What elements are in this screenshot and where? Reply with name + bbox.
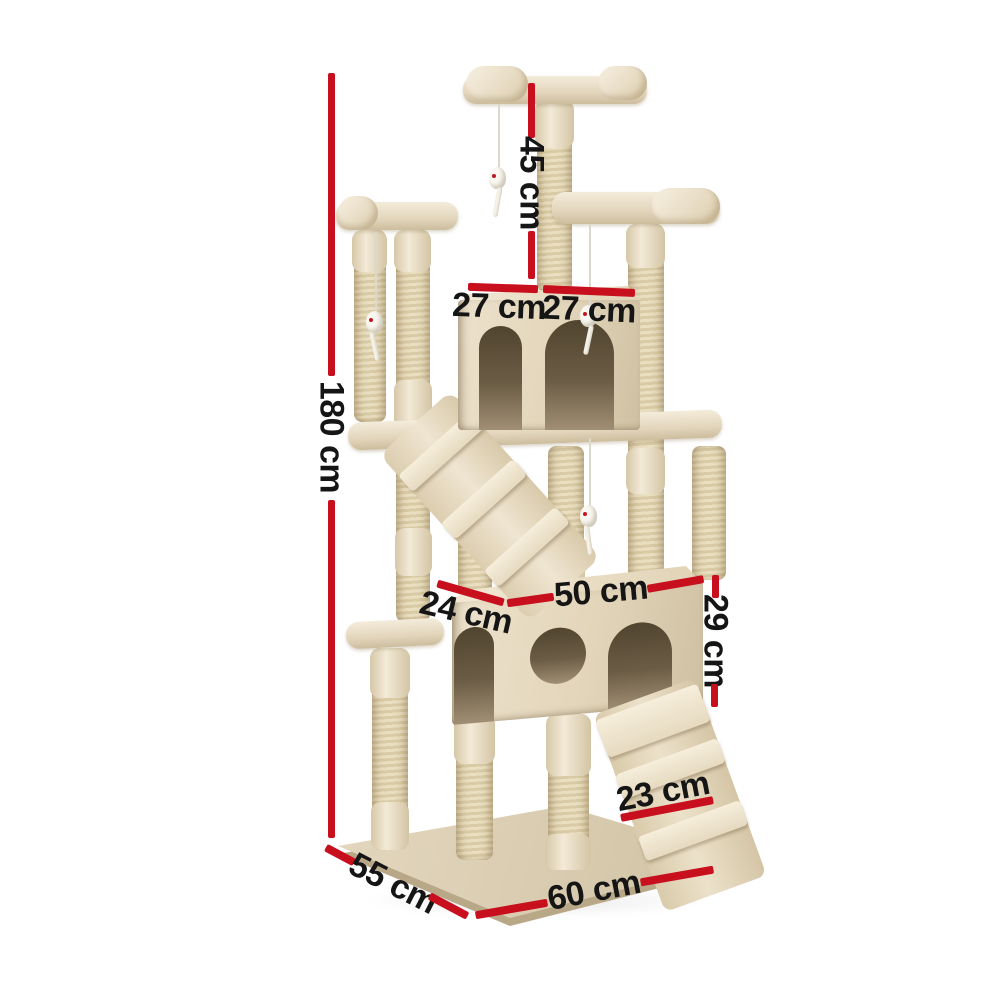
post-cuff bbox=[370, 648, 410, 698]
dim-180-line-bottom bbox=[328, 500, 335, 838]
mouse-eye bbox=[369, 318, 373, 322]
mouse-body bbox=[366, 311, 383, 333]
mouse-toy bbox=[580, 505, 598, 561]
dim-27-left-label: 27 cm bbox=[451, 286, 546, 328]
product-dimension-diagram: 180 cm 45 cm 27 cm 27 cm 50 cm 24 cm 29 … bbox=[0, 0, 1000, 1000]
top-perch-bolster-left bbox=[466, 66, 528, 102]
mouse-eye bbox=[583, 512, 587, 516]
mouse-toy bbox=[366, 311, 384, 367]
post-cuff bbox=[626, 448, 665, 494]
post-cuff bbox=[546, 714, 591, 776]
dim-50-label: 50 cm bbox=[553, 568, 650, 615]
post-cuff bbox=[545, 834, 591, 870]
mouse-body bbox=[580, 505, 597, 527]
mouse-tail bbox=[584, 525, 593, 555]
dim-29-label: 29 cm bbox=[696, 594, 735, 688]
post-cuff bbox=[394, 230, 431, 272]
left-perch-bolster bbox=[338, 196, 378, 230]
mouse-toy bbox=[489, 167, 507, 223]
dim-180-line-top bbox=[328, 73, 335, 376]
dim-27-right-label: 27 cm bbox=[541, 288, 637, 331]
scratch-post-right-rear bbox=[692, 446, 726, 580]
toy-string bbox=[498, 104, 500, 170]
dim-45-label: 45 cm bbox=[512, 136, 551, 230]
mouse-body bbox=[489, 167, 506, 189]
ramp-step bbox=[484, 507, 570, 588]
dim-45-line-bottom bbox=[528, 231, 535, 279]
condo-left-door bbox=[479, 326, 522, 430]
post-cuff bbox=[371, 802, 409, 850]
large-house-left-door bbox=[454, 625, 494, 724]
toy-string bbox=[589, 438, 591, 508]
dim-45-line-top bbox=[528, 83, 535, 138]
post-cuff bbox=[626, 224, 665, 268]
top-perch-bolster-right bbox=[598, 66, 647, 100]
dim-29-tick-bottom bbox=[711, 684, 718, 707]
ramp-step bbox=[441, 459, 527, 540]
mouse-tail bbox=[492, 187, 502, 217]
dim-180-label: 180 cm bbox=[312, 381, 351, 493]
post-cuff bbox=[352, 230, 387, 272]
toy-string bbox=[375, 232, 377, 314]
large-house-round-window bbox=[530, 625, 586, 686]
post-cuff bbox=[395, 528, 432, 576]
mouse-eye bbox=[492, 174, 496, 178]
right-perch-bolster bbox=[652, 188, 720, 224]
mouse-tail bbox=[369, 331, 380, 361]
